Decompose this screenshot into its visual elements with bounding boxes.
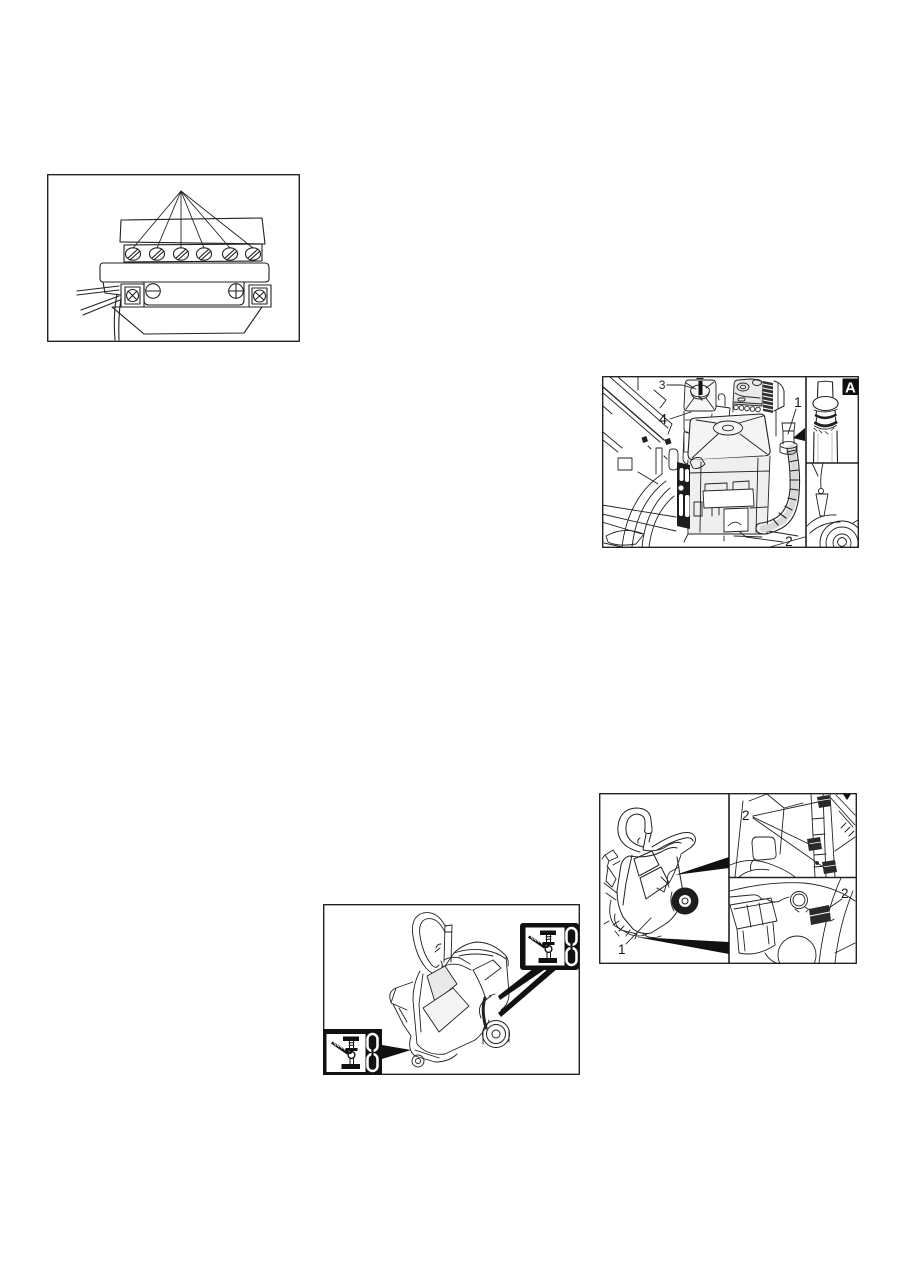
svg-text:4: 4 (659, 412, 667, 428)
svg-text:2: 2 (742, 808, 750, 823)
svg-text:3: 3 (659, 380, 665, 392)
svg-text:A: A (845, 380, 856, 397)
svg-text:1: 1 (618, 942, 626, 957)
svg-text:1: 1 (794, 394, 802, 410)
